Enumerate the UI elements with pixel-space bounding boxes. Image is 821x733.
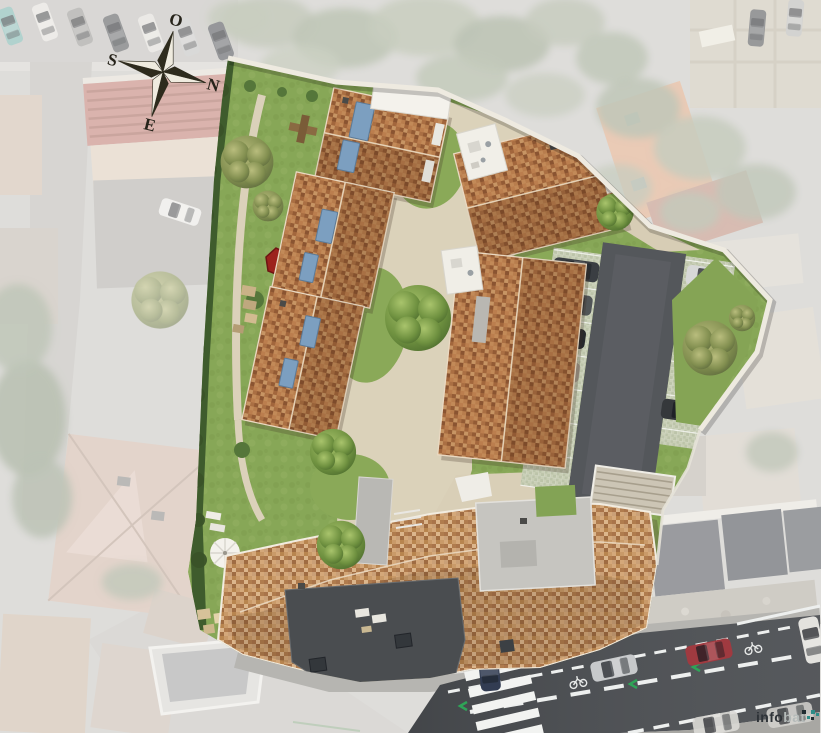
- shrub-east: [729, 305, 755, 331]
- shrub-tree: [253, 191, 284, 222]
- tree-courtyard-large: [385, 285, 451, 351]
- watermark-text: infobat: [756, 709, 805, 725]
- tree-parking: [683, 321, 738, 376]
- tree-courtyard-south: [310, 429, 356, 475]
- watermark-prefix: info: [756, 709, 783, 725]
- roof-skylight: [499, 639, 515, 653]
- site-plan-stage: O N E S infobat: [0, 0, 821, 733]
- tree-north-garden: [221, 136, 274, 189]
- tree-garden-south: [317, 521, 365, 569]
- aerial-site-plan: O N E S infobat: [0, 0, 821, 733]
